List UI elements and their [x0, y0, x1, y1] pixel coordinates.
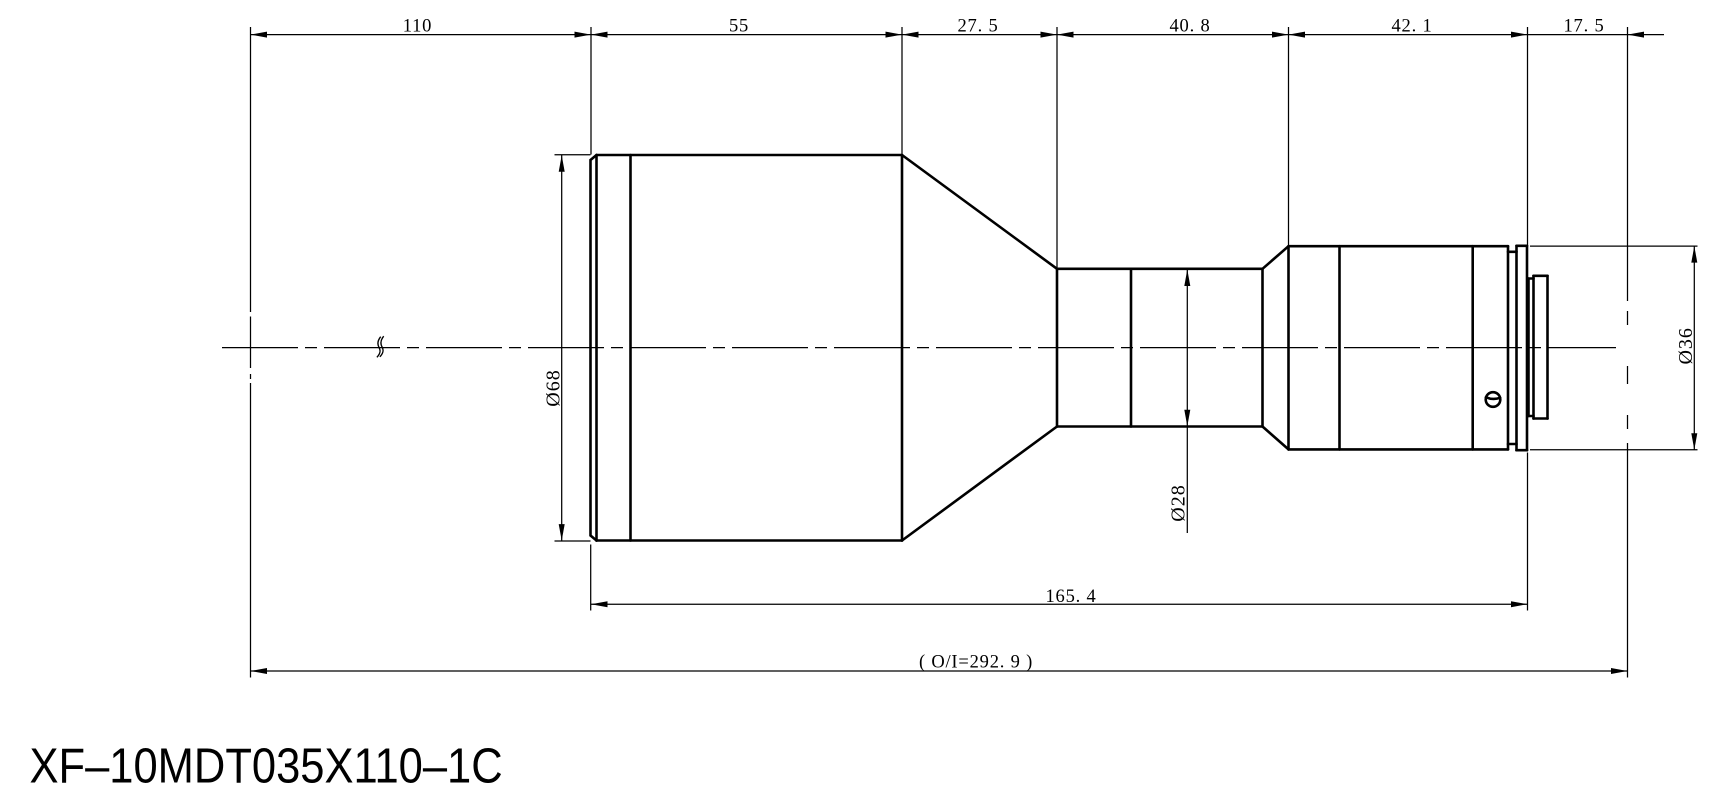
svg-text:40. 8: 40. 8: [1170, 17, 1211, 37]
svg-text:Ø68: Ø68: [543, 369, 565, 406]
svg-text:Ø36: Ø36: [1675, 327, 1697, 364]
svg-text:XF–10MDT035X110–1C: XF–10MDT035X110–1C: [30, 738, 503, 793]
svg-text:110: 110: [403, 17, 432, 37]
svg-text:( O/I=292. 9 ): ( O/I=292. 9 ): [919, 653, 1033, 673]
svg-text:17. 5: 17. 5: [1564, 17, 1605, 37]
svg-text:55: 55: [729, 17, 749, 37]
svg-text:Ø28: Ø28: [1168, 484, 1190, 521]
svg-text:27. 5: 27. 5: [958, 17, 999, 37]
svg-text:42. 1: 42. 1: [1392, 17, 1433, 37]
svg-text:165. 4: 165. 4: [1045, 587, 1096, 607]
